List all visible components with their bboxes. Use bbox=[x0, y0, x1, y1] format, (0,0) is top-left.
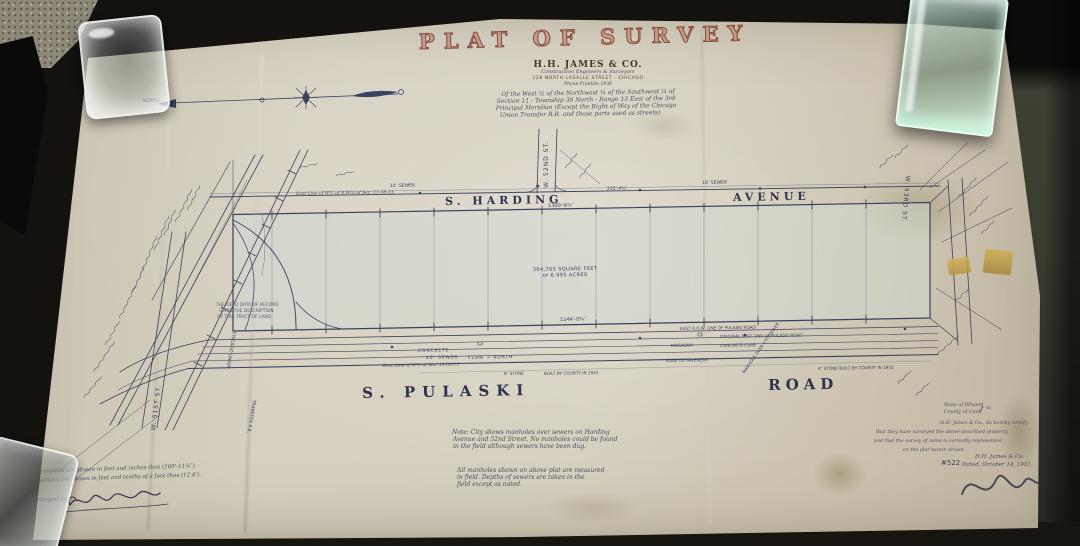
annotation-pavement: EDGE OF PAVEMENT bbox=[666, 358, 709, 364]
street-harding: S. HARDING bbox=[445, 194, 563, 209]
53rd-street-lines bbox=[920, 142, 1012, 345]
annotation-county: BUILT BY COUNTY IN 1931 bbox=[544, 371, 599, 377]
deed-note-line: GIVES THE DESCRIPTION bbox=[219, 309, 274, 314]
annotation-concrete: CONCRETE bbox=[418, 348, 449, 354]
cert-state: State of Illinois bbox=[944, 403, 981, 409]
street-52nd: W. 52ND ST. bbox=[544, 141, 551, 188]
surveyor-signature bbox=[66, 491, 168, 512]
tape-piece bbox=[983, 249, 1013, 276]
52nd-street-lines bbox=[527, 129, 600, 193]
cert-county: County of Cook bbox=[944, 410, 981, 416]
annotation-macadam: MACADAM bbox=[671, 344, 693, 349]
dimension-corner: 235'-4¾″ bbox=[607, 187, 627, 193]
tape-piece bbox=[947, 257, 971, 276]
certifier-signature bbox=[962, 476, 1040, 494]
cert-ss: ss bbox=[986, 406, 991, 412]
firm-address: 228 NORTH LASALLE STREET · CHICAGO bbox=[532, 76, 643, 81]
firm-phone: Phone Franklin 1936 bbox=[564, 82, 612, 87]
cert-body-line: and that the survey of same is correctly… bbox=[874, 439, 1002, 445]
annotation-sewer: 10″ SEWER bbox=[390, 184, 415, 190]
annotation-flow: FLOW → NORTH bbox=[468, 355, 513, 361]
photo-stage: PLAT OF SURVEY H.H. JAMES & CO. Construc… bbox=[0, 0, 1080, 546]
glass-paperweight-top-left[interactable] bbox=[77, 14, 171, 120]
glass-paperweight-top-right[interactable] bbox=[895, 0, 1009, 137]
cert-dated: Dated, October 14, 1931. bbox=[962, 462, 1033, 468]
area-value: 304,705 SQUARE FEET or 6.995 ACRES bbox=[533, 267, 598, 280]
dimension-bottom: 1144'-0¾″ bbox=[560, 318, 586, 324]
street-road: ROAD bbox=[768, 376, 838, 394]
annotation-sewer: 10″ SEWER bbox=[702, 181, 727, 187]
annotation-sewer-40: 40″ SEWER bbox=[426, 355, 458, 361]
north-arrow-graphic bbox=[158, 86, 404, 109]
catch-basins bbox=[478, 333, 702, 345]
firm-subtitle: Construction Engineers & Surveyors bbox=[541, 70, 634, 76]
dark-wall-shadow bbox=[0, 36, 48, 236]
cert-body-line: H.H. James & Co., do hereby certify bbox=[940, 421, 1028, 427]
job-number: #522 bbox=[941, 459, 960, 467]
cert-body-line: on the plat herein drawn. bbox=[903, 448, 965, 454]
area-line2: or 6.995 ACRES bbox=[533, 273, 598, 280]
annotation-stone-8: 8″ STONE bbox=[504, 372, 524, 377]
note-line: field except as noted. bbox=[457, 482, 522, 489]
deed-note-line: THE DEED DATA OF RECORD bbox=[216, 303, 279, 308]
annotation-curb: CONCRETE CURB bbox=[720, 343, 756, 348]
note-line: in the field although sewers have been d… bbox=[453, 444, 586, 451]
deed-note-line: OF THIS TRACT OF LAND bbox=[217, 315, 271, 320]
dimension-top: 1300'-6½″ bbox=[548, 204, 574, 210]
street-avenue: AVENUE bbox=[733, 191, 810, 205]
cert-body-line: that they have surveyed the above descri… bbox=[876, 430, 1008, 436]
street-pulaski: S. PULASKI bbox=[362, 382, 530, 402]
cert-firm: H.H. James & Co. bbox=[975, 454, 1024, 460]
51st-street-lines bbox=[142, 232, 186, 428]
